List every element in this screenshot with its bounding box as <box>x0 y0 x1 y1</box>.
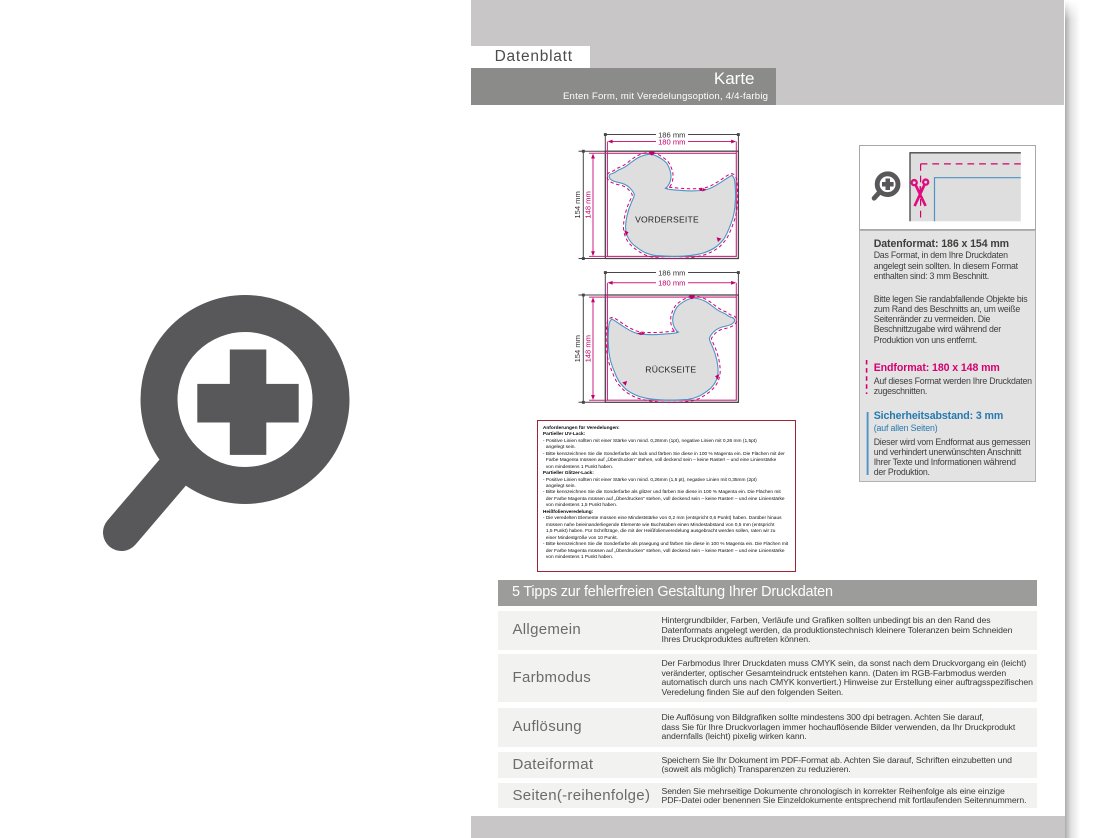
svg-text:154 mm: 154 mm <box>573 191 582 218</box>
svg-text:148 mm: 148 mm <box>583 191 592 218</box>
svg-text:180 mm: 180 mm <box>658 279 685 288</box>
svg-text:VORDERSEITE: VORDERSEITE <box>635 214 699 224</box>
svg-text:RÜCKSEITE: RÜCKSEITE <box>645 364 696 374</box>
svg-text:180 mm: 180 mm <box>658 137 685 146</box>
svg-text:154 mm: 154 mm <box>573 335 582 362</box>
svg-text:148 mm: 148 mm <box>583 335 592 362</box>
svg-text:186 mm: 186 mm <box>658 268 685 277</box>
